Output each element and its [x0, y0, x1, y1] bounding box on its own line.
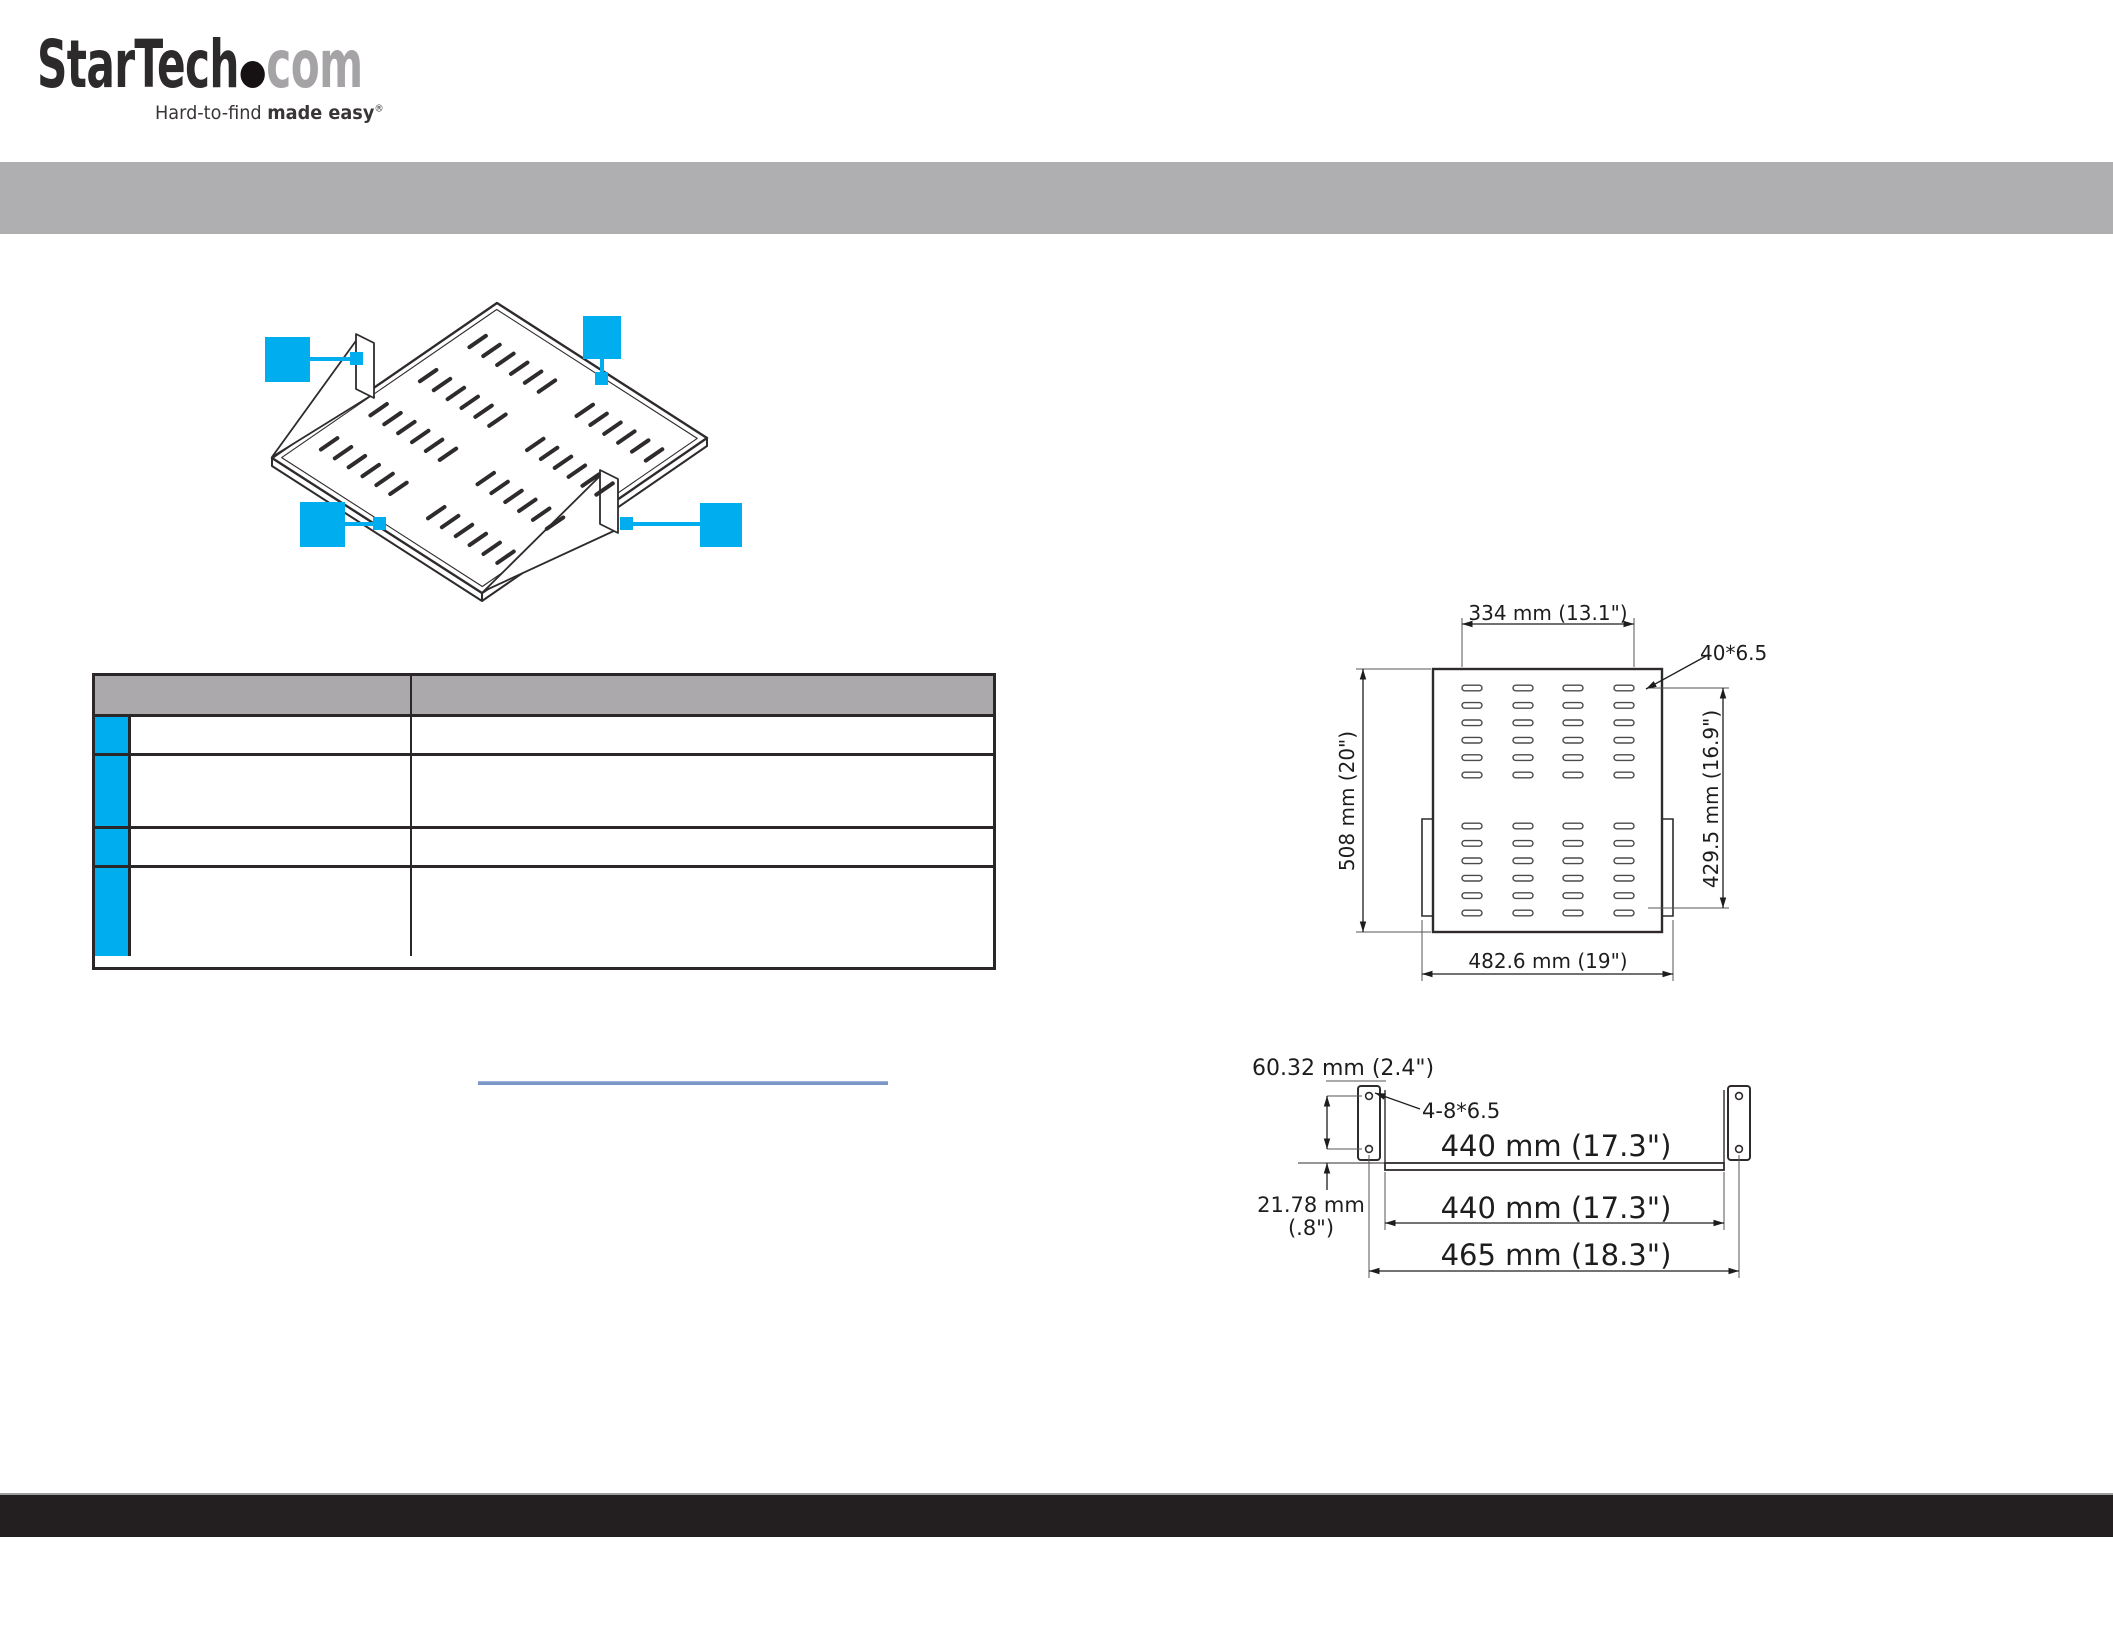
row-accent-cell: [95, 868, 131, 956]
logo-wordmark: StarTechcom: [37, 26, 362, 103]
top-view-height-dim: 508 mm (20"): [1335, 701, 1359, 901]
logo-star-text: StarTech: [37, 26, 239, 103]
top-view-outer-width-dim: 482.6 mm (19"): [1448, 949, 1648, 973]
front-view-offset-dim-mm: 21.78 mm: [1256, 1193, 1366, 1217]
spec-table: [92, 673, 996, 970]
table-row: [95, 756, 993, 829]
footer-bar: [0, 1493, 2113, 1537]
table-header-col1: [95, 676, 412, 714]
page: StarTechcom Hard-to-find made easy®: [0, 0, 2113, 1632]
logo-com-text: com: [266, 26, 362, 103]
table-header-row: [95, 676, 993, 717]
callout-box-2: [583, 316, 621, 359]
logo-dot-icon: [241, 61, 265, 88]
table-row: [95, 829, 993, 868]
row-accent-cell: [95, 717, 131, 753]
callout-connector-1: [350, 352, 363, 365]
registered-mark: ®: [374, 104, 383, 115]
callout-box-3: [300, 502, 345, 547]
callout-connector-4: [620, 517, 633, 530]
callout-connector-2: [595, 372, 608, 385]
shelf-isometric-drawing: [230, 280, 770, 620]
front-view-bracket-height-dim: 60.32 mm (2.4"): [1252, 1056, 1434, 1081]
link-underline[interactable]: [478, 1081, 888, 1085]
callout-box-4: [700, 503, 742, 547]
top-view-width-dim: 334 mm (13.1"): [1448, 601, 1648, 625]
row-accent-cell: [95, 829, 131, 865]
front-view-mount-width-dim: 440 mm (17.3"): [1436, 1191, 1676, 1225]
callout-box-1: [265, 337, 310, 382]
row-accent-cell: [95, 756, 131, 826]
callout-connector-3: [373, 517, 386, 530]
front-view-shelf-width-dim: 440 mm (17.3"): [1436, 1129, 1676, 1163]
front-view-overall-width-dim: 465 mm (18.3"): [1436, 1238, 1676, 1272]
startech-logo: StarTechcom Hard-to-find made easy®: [37, 20, 637, 150]
header-gray-band: [0, 162, 2113, 234]
top-view-slot-label: 40*6.5: [1700, 641, 1767, 665]
front-view-holes-label: 4-8*6.5: [1422, 1099, 1500, 1123]
table-row: [95, 868, 993, 956]
table-row: [95, 717, 993, 756]
front-view-offset-dim-in: (.8"): [1256, 1216, 1366, 1240]
logo-tagline: Hard-to-find made easy®: [155, 102, 384, 124]
table-header-col2: [412, 676, 993, 714]
top-view-inner-height-dim: 429.5 mm (16.9"): [1699, 679, 1723, 919]
